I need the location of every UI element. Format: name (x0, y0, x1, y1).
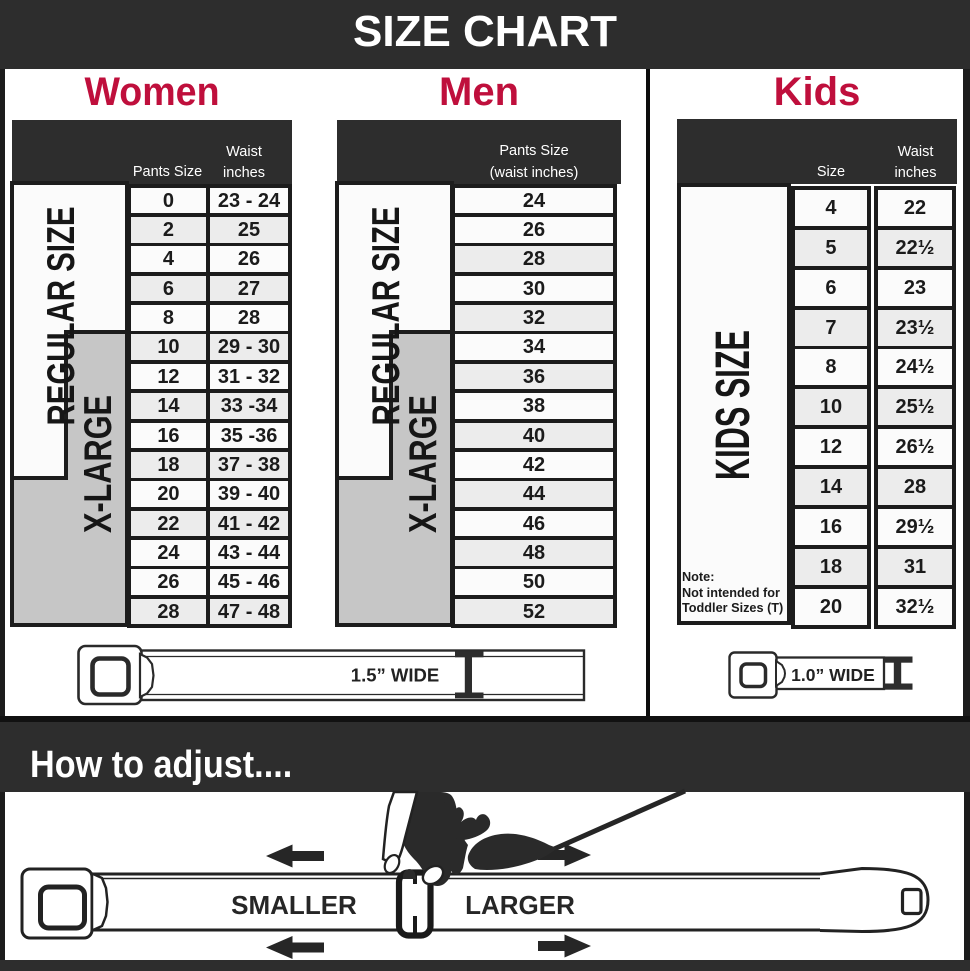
svg-text:1.5” WIDE: 1.5” WIDE (351, 665, 439, 686)
svg-text:REGULAR SIZE: REGULAR SIZE (365, 207, 408, 426)
svg-text:1.0” WIDE: 1.0” WIDE (791, 665, 875, 685)
svg-text:KIDS SIZE: KIDS SIZE (707, 330, 760, 480)
svg-text:REGULAR SIZE: REGULAR SIZE (40, 207, 83, 426)
svg-text:X-LARGE: X-LARGE (77, 395, 120, 533)
svg-text:X-LARGE: X-LARGE (402, 395, 445, 533)
